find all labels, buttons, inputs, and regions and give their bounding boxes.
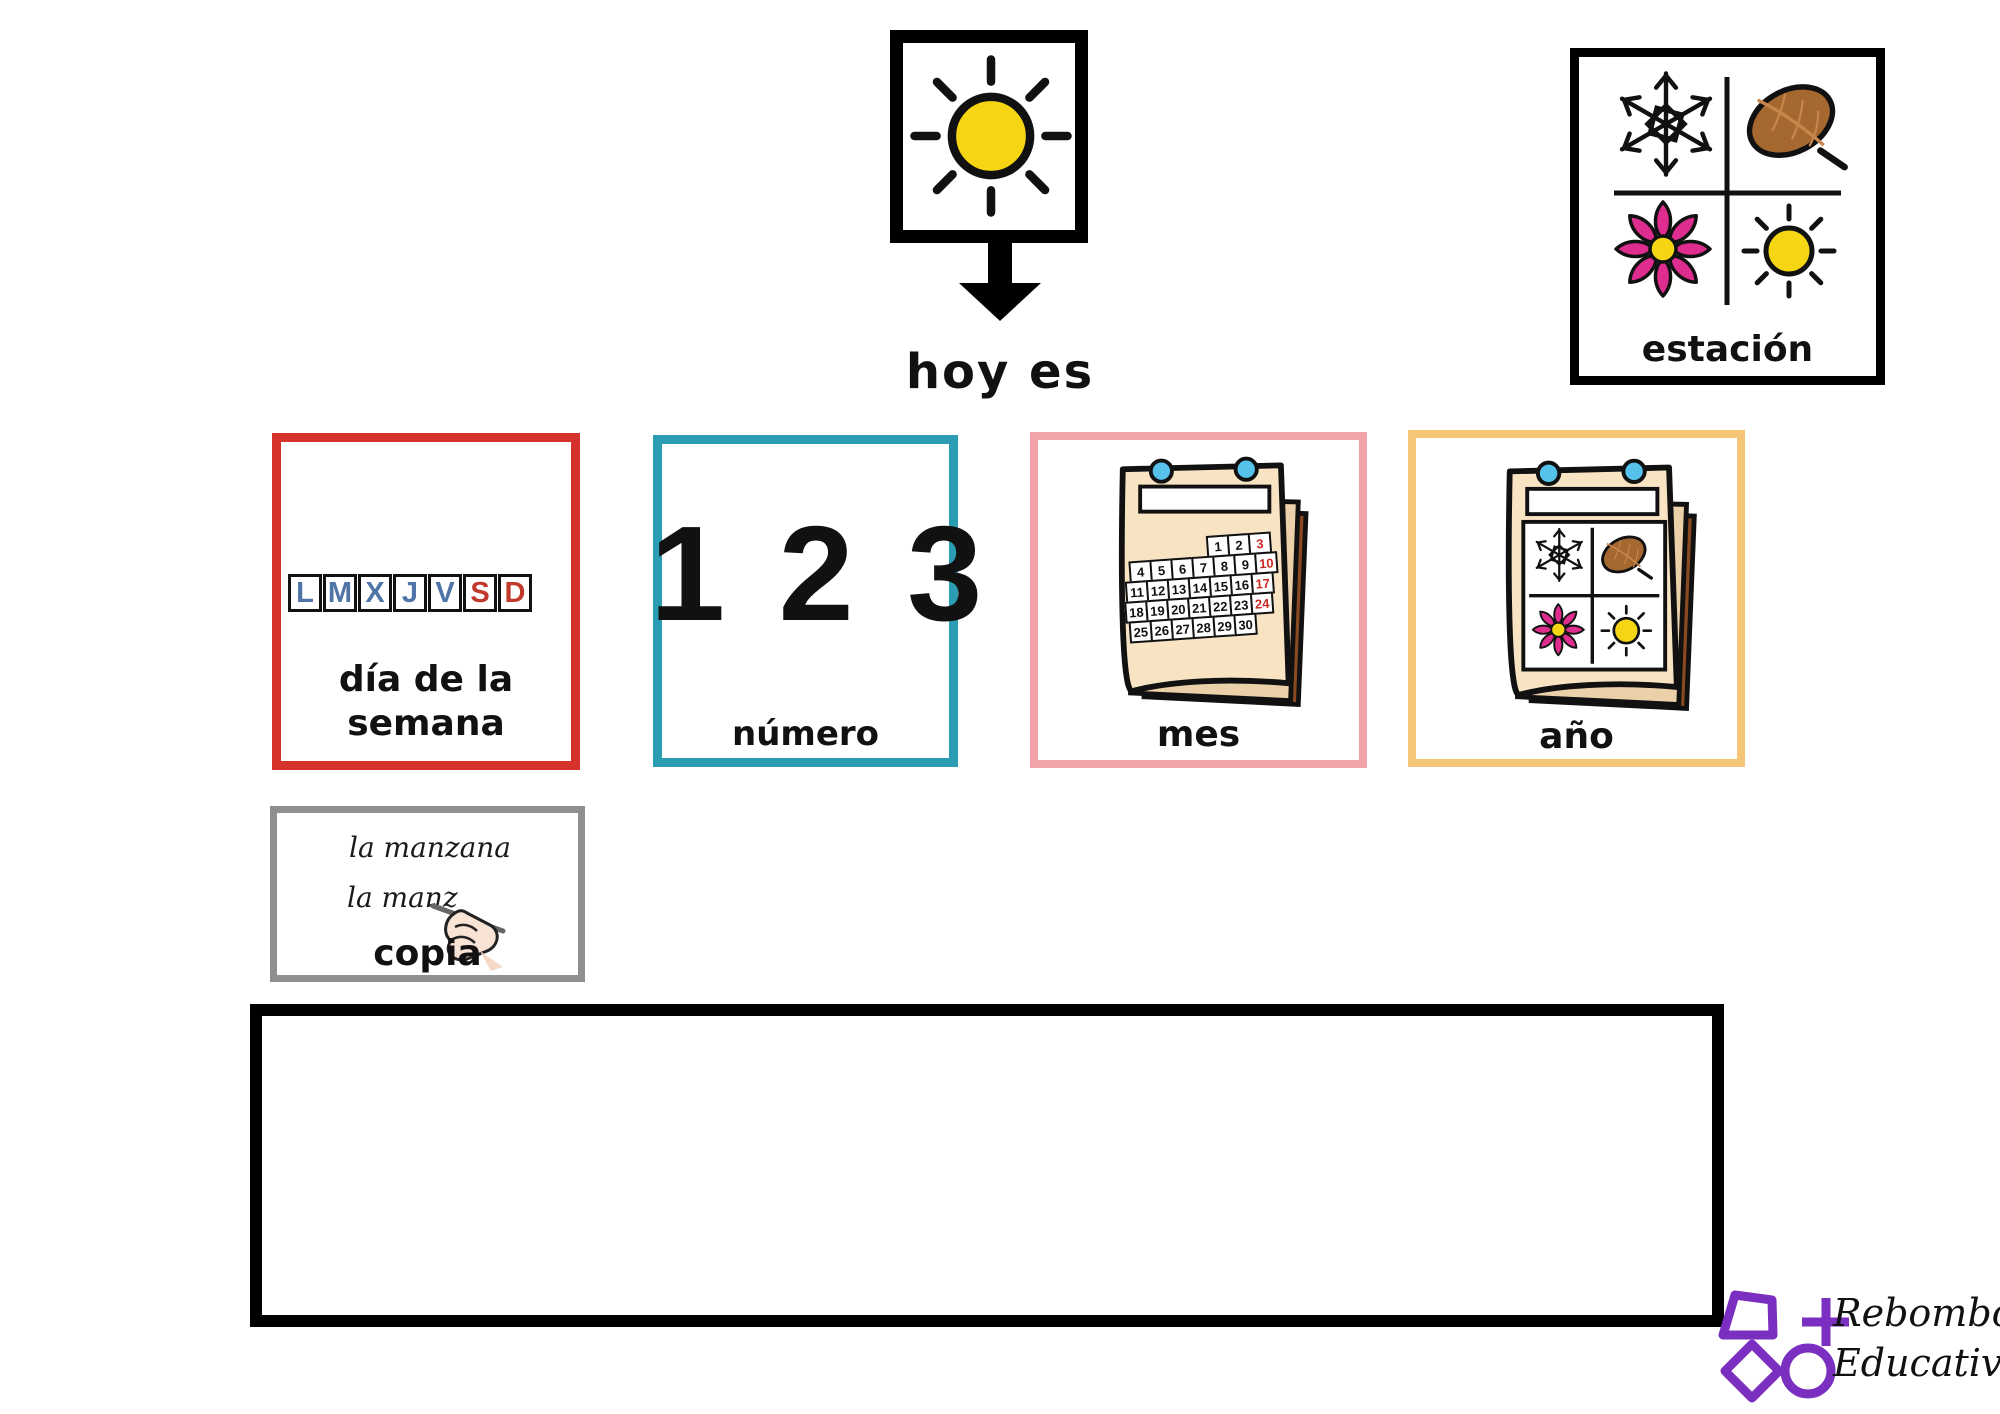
day-label-line1: día de la: [281, 658, 571, 702]
today-weather-box: [890, 30, 1088, 243]
week-letter-cell: M: [323, 574, 357, 612]
today-label: hoy es: [860, 344, 1140, 400]
season-card: estación: [1570, 48, 1885, 385]
sun-icon: [1744, 206, 1834, 296]
year-card-label: año: [1416, 716, 1737, 757]
logo-text-line1: Rebombori: [1833, 1291, 2000, 1335]
worksheet-page: hoy es estación LMXJVSD día de la semana…: [0, 0, 2000, 1414]
copy-card: la manzana la manz copia: [270, 806, 585, 982]
month-card: 1234567891011121314151617181920212223242…: [1030, 432, 1367, 768]
day-card-label: día de la semana: [281, 658, 571, 746]
down-arrow-icon: [950, 243, 1050, 323]
week-letter-cell: X: [358, 574, 392, 612]
month-card-label: mes: [1038, 714, 1359, 755]
year-card: año: [1408, 430, 1745, 767]
diamond-shape: [1725, 1344, 1779, 1398]
season-card-label: estación: [1579, 329, 1876, 370]
week-letter-strip: LMXJVSD: [288, 574, 533, 612]
day-of-week-card: LMXJVSD día de la semana: [272, 433, 580, 770]
copy-card-label: copia: [277, 933, 578, 974]
sun-icon: [1602, 606, 1651, 655]
sun-icon: [906, 51, 1076, 221]
week-letter-cell: J: [393, 574, 427, 612]
autumn-leaf-icon: [1738, 73, 1845, 169]
rebombori-logo-shapes: [1702, 1272, 1852, 1407]
calendar-date-cell: 30: [1233, 613, 1257, 637]
seasons-calendar-icon: [1463, 450, 1708, 722]
logo-text-line2: Educativo: [1833, 1341, 2000, 1385]
writing-area: [250, 1004, 1724, 1327]
week-letter-cell: L: [288, 574, 322, 612]
trapezoid-shape: [1723, 1295, 1773, 1335]
number-card-label: número: [662, 714, 949, 754]
week-letter-cell: V: [428, 574, 462, 612]
poinsettia-flower-icon: [1533, 604, 1584, 655]
number-digits: 1 2 3: [650, 506, 960, 641]
snowflake-icon: [1619, 73, 1713, 174]
week-letter-cell: S: [463, 574, 497, 612]
week-letter-cell: D: [498, 574, 532, 612]
poinsettia-flower-icon: [1616, 202, 1710, 296]
calendar-grid: 1234567891011121314151617181920212223242…: [1120, 531, 1281, 641]
day-label-line2: semana: [281, 702, 571, 746]
copy-sample-line: la manzana: [349, 831, 511, 864]
circle-shape: [1785, 1348, 1831, 1394]
number-card: 1 2 3 número: [653, 435, 958, 767]
calendar-date-cell: 24: [1250, 591, 1274, 615]
